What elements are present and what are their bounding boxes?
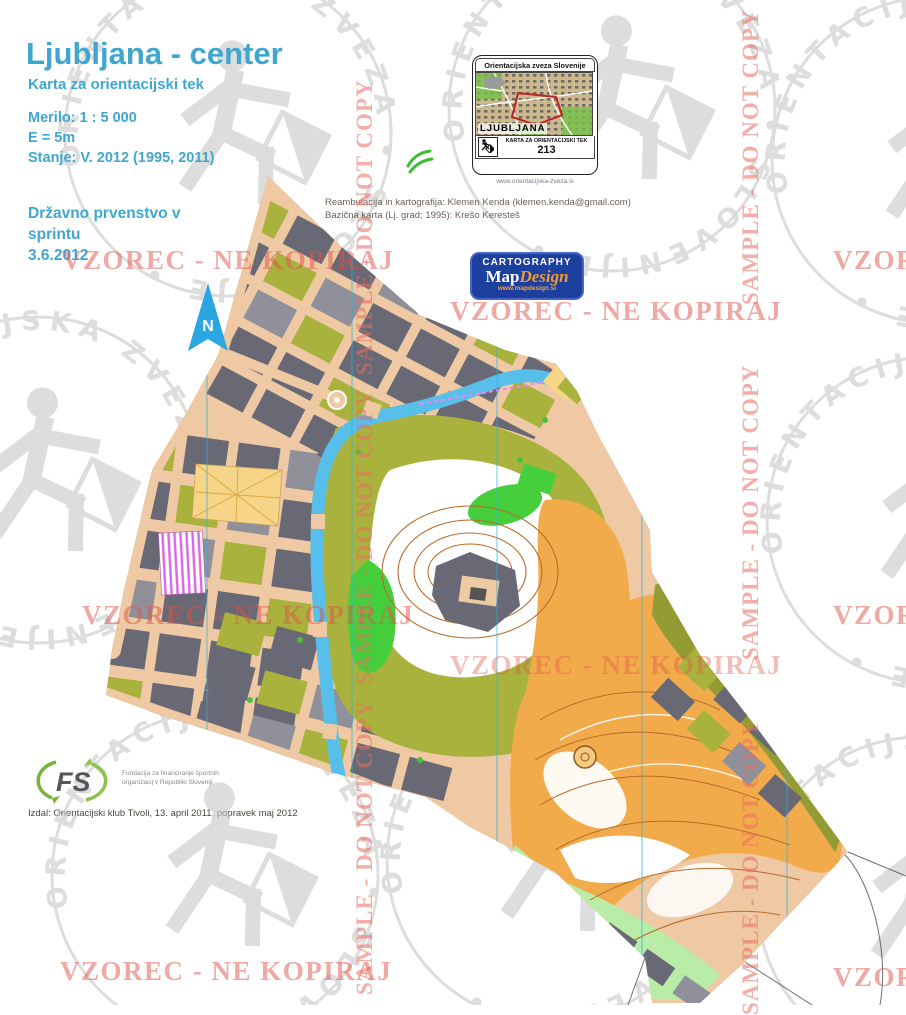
watermark-pink: SAMPLE - DO NOT COPY bbox=[738, 360, 764, 660]
badge-number: 213 bbox=[501, 144, 592, 156]
watermark-pink: SAMPLE - DO NOT COPY bbox=[352, 385, 378, 685]
paved-square bbox=[192, 464, 282, 526]
watermark-pink: SAMPLE - DO NOT COPY bbox=[738, 5, 764, 305]
map-meta: Merilo: 1 : 5 000 E = 5m Stanje: V. 2012… bbox=[28, 108, 214, 168]
green-chevron-icon bbox=[408, 151, 432, 172]
watermark-red: VZOREC - NE KOPIRAJ bbox=[62, 245, 394, 276]
round-tower bbox=[574, 746, 596, 768]
map-status: Stanje: V. 2012 (1995, 2011) bbox=[28, 148, 214, 168]
fs-foundation-logo: FS bbox=[26, 758, 122, 804]
badge-header: Orientacijska zveza Slovenije bbox=[475, 58, 595, 72]
mapdesign-brand: MapDesign bbox=[472, 268, 582, 285]
badge-bottom-row: KARTA ZA ORIENTACIJSKI TEK 213 bbox=[475, 136, 595, 159]
map-registry-badge: Orientacijska zveza Slovenije LJUBLJANA bbox=[472, 55, 598, 175]
map-scale: Merilo: 1 : 5 000 bbox=[28, 108, 214, 128]
mapdesign-logo: CARTOGRAPHY MapDesign www.mapdesign.si bbox=[470, 252, 584, 300]
watermark-red: VZOREC - NE KOPIRAJ bbox=[833, 962, 906, 993]
north-label: N bbox=[202, 318, 214, 335]
map-subtitle: Karta za orientacijski tek bbox=[28, 76, 204, 93]
watermark-pink: SAMPLE - DO NOT COPY bbox=[352, 75, 378, 375]
fs-abbr: FS bbox=[56, 767, 91, 797]
watermark-red: VZOREC - NE KOPIRAJ bbox=[833, 245, 906, 276]
page-title: Ljubljana - center bbox=[26, 36, 283, 72]
map-equidistance: E = 5m bbox=[28, 128, 214, 148]
badge-map-thumbnail: LJUBLJANA bbox=[475, 72, 593, 136]
watermark-pink: SAMPLE - DO NOT COPY bbox=[738, 715, 764, 1015]
mapdesign-url: www.mapdesign.si bbox=[472, 285, 582, 292]
watermark-red: VZOREC - NE KOPIRAJ bbox=[60, 956, 392, 987]
map-sheet: { "title_block": { "title": "Ljubljana -… bbox=[0, 0, 906, 1005]
ozs-logo-watermark-icon: ORIENTACIJSKA ZVEZA • SLOVENIJE • bbox=[393, 0, 832, 328]
watermark-red: VZOREC - NE KOPIRAJ bbox=[833, 600, 906, 631]
orienteering-runner-icon bbox=[478, 137, 498, 157]
event-name-line1: Državno prvenstvo v bbox=[28, 203, 218, 224]
badge-map-label: LJUBLJANA bbox=[478, 123, 547, 134]
event-name-line2: sprintu bbox=[28, 224, 218, 245]
watermark-red: VZOREC - NE KOPIRAJ bbox=[450, 650, 782, 681]
watermark-pink: SAMPLE - DO NOT COPY bbox=[352, 695, 378, 995]
watermark-red: VZOREC - NE KOPIRAJ bbox=[450, 296, 782, 327]
